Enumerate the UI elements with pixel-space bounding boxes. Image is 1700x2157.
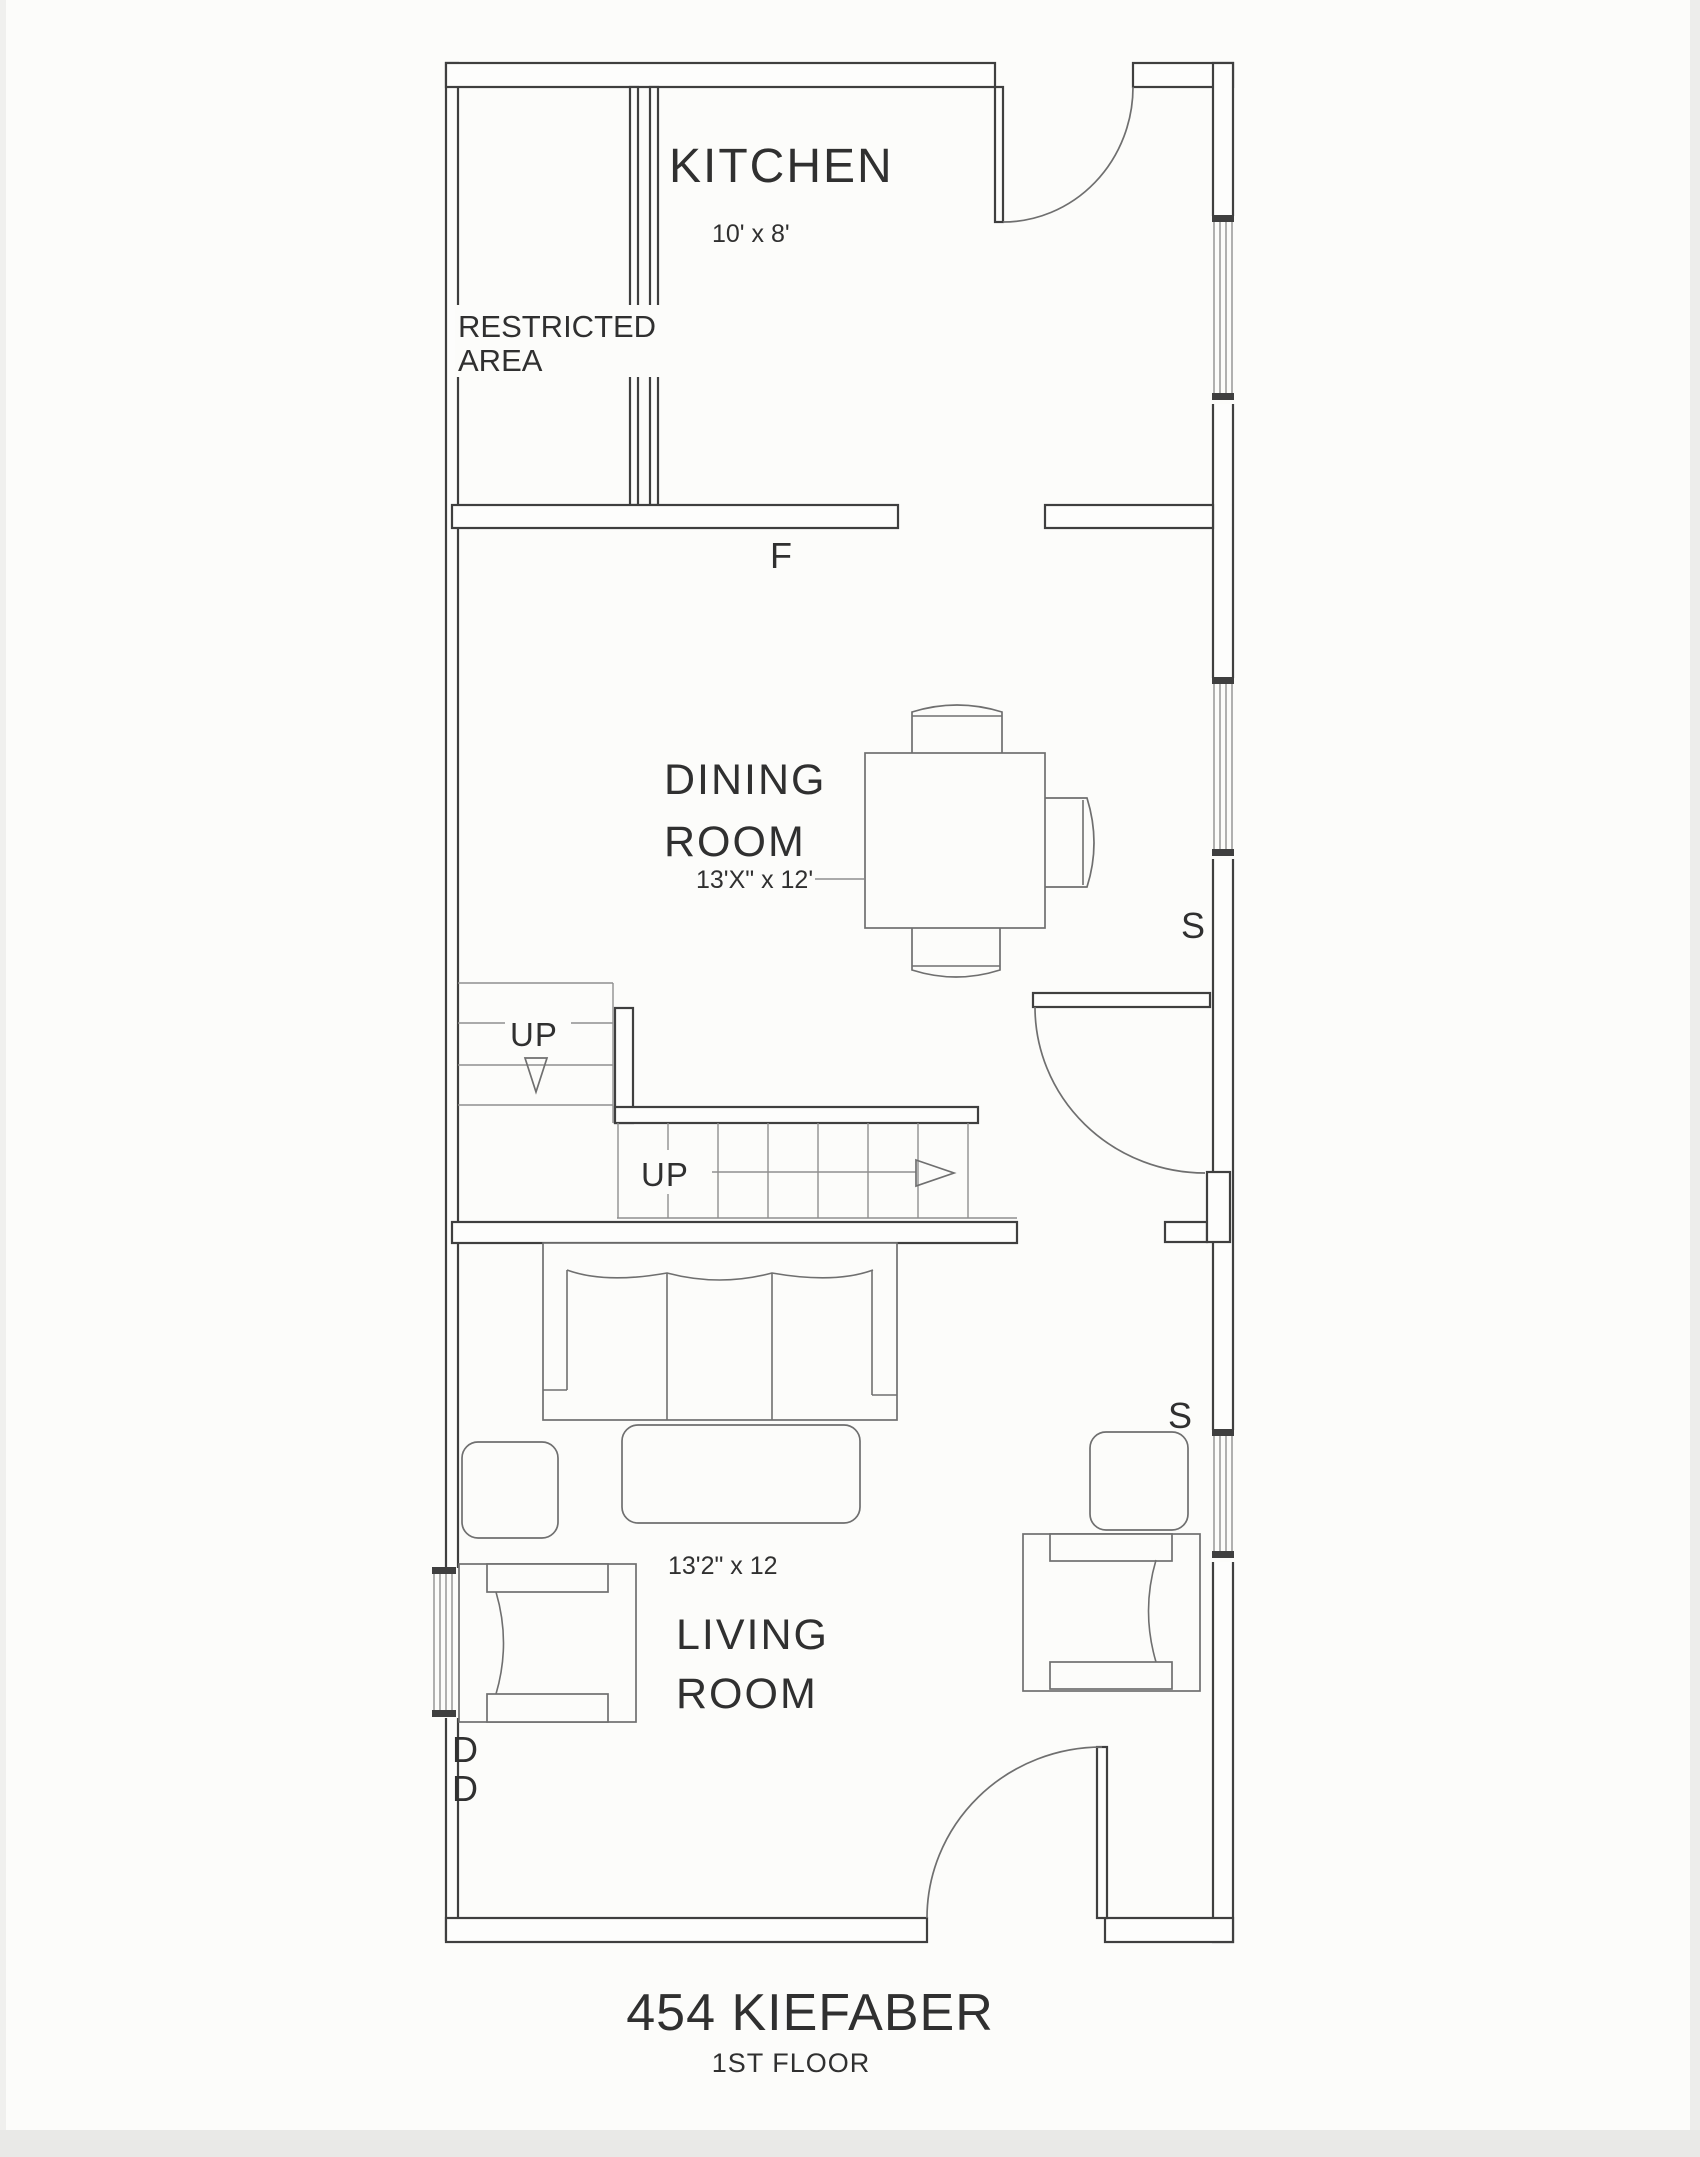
window-kitchen-right <box>1210 215 1236 404</box>
restricted-area-label-line2: AREA <box>458 343 543 378</box>
switch-marker-living: S <box>1168 1395 1192 1436</box>
window-living-left <box>430 1567 460 1718</box>
wall-bottom-exterior-left <box>446 1918 927 1942</box>
floorplan-canvas: UP UP <box>0 0 1700 2157</box>
stairs-layer: UP UP <box>458 983 1017 1218</box>
dining-chair-north <box>912 705 1002 753</box>
dining-room-label-line2: ROOM <box>664 818 806 866</box>
title-block: 454 KIEFABER 1ST FLOOR <box>626 1984 994 2078</box>
coffee-table <box>622 1425 860 1523</box>
wall-kitchen-dining-divider-left <box>452 505 898 528</box>
stairs-up-label-lower: UP <box>641 1156 689 1193</box>
hall-door-swing-arc <box>1035 1007 1205 1173</box>
wall-closet-right <box>630 87 638 505</box>
kitchen-door-swing-arc <box>1003 87 1133 222</box>
wall-hall-stub-vertical <box>1207 1172 1230 1242</box>
front-door-leaf <box>1097 1747 1107 1918</box>
front-door-swing-arc <box>927 1747 1102 1918</box>
stairs-up-label-upper: UP <box>510 1016 558 1053</box>
kitchen-door-leaf <box>995 87 1003 222</box>
wall-bottom-exterior-right <box>1105 1918 1233 1942</box>
dining-chair-east <box>1045 798 1094 887</box>
dining-table <box>865 753 1045 928</box>
stairs-up-arrow-right-triangle <box>916 1160 954 1186</box>
armchair-left <box>459 1564 636 1722</box>
hall-door-leaf-open <box>1033 993 1210 1007</box>
dining-room-dims: 13'X" x 12' <box>696 866 813 894</box>
wall-kitchen-dining-divider-right <box>1045 505 1213 528</box>
switch-marker-dining: S <box>1181 905 1205 946</box>
plan-title-address: 454 KIEFABER <box>626 1984 994 2042</box>
window-living-right <box>1210 1429 1236 1562</box>
window-dining-right <box>1210 677 1236 859</box>
living-room-label-line2: ROOM <box>676 1670 818 1718</box>
door-marker-1: D <box>452 1729 478 1770</box>
living-room-label-line1: LIVING <box>676 1611 829 1659</box>
scan-edge-artifacts <box>0 0 1700 2157</box>
door-marker-2: D <box>452 1768 478 1809</box>
living-room-dims: 13'2" x 12 <box>668 1552 778 1580</box>
dining-room-label-line1: DINING <box>664 756 827 804</box>
wall-kitchen-left <box>650 87 658 505</box>
restricted-area-label-line1: RESTRICTED <box>458 309 656 344</box>
sofa <box>543 1243 897 1420</box>
dining-table-set <box>865 705 1094 977</box>
wall-hall-stub-horizontal <box>1165 1222 1207 1242</box>
wall-stair-horizontal <box>615 1107 978 1123</box>
wall-top-exterior-left <box>446 63 995 87</box>
plan-title-floor: 1ST FLOOR <box>712 2048 871 2078</box>
kitchen-label: KITCHEN <box>669 140 894 193</box>
wall-stair-vertical <box>615 1008 633 1123</box>
end-table-left <box>462 1442 558 1538</box>
furniture-layer <box>459 705 1200 1722</box>
wall-living-north <box>452 1222 1017 1243</box>
stairs-upper-flight <box>458 983 613 1123</box>
scanned-floor-plan-page: UP UP <box>0 0 1700 2157</box>
furnace-marker: F <box>770 535 792 576</box>
armchair-right <box>1023 1534 1200 1691</box>
stairs-up-arrow-down-triangle <box>525 1058 547 1092</box>
kitchen-dims: 10' x 8' <box>712 220 790 248</box>
dining-chair-south <box>912 928 1000 977</box>
end-table-right <box>1090 1432 1188 1530</box>
